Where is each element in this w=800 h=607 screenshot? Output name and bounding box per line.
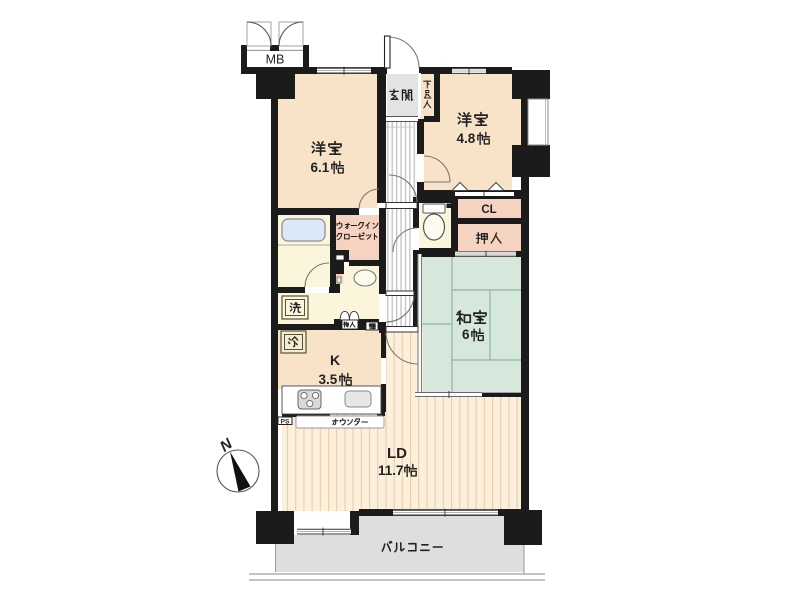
svg-text:MB: MB: [266, 53, 285, 67]
svg-text:4.8: 4.8: [457, 131, 476, 146]
svg-text:6: 6: [462, 327, 470, 342]
svg-text:LD: LD: [387, 445, 407, 462]
svg-text:CL: CL: [481, 204, 496, 216]
svg-text:11.7: 11.7: [378, 463, 404, 478]
svg-text:6.1: 6.1: [311, 160, 330, 175]
svg-text:3.5: 3.5: [319, 372, 338, 387]
svg-text:PS: PS: [281, 419, 290, 426]
svg-text:K: K: [330, 352, 340, 368]
